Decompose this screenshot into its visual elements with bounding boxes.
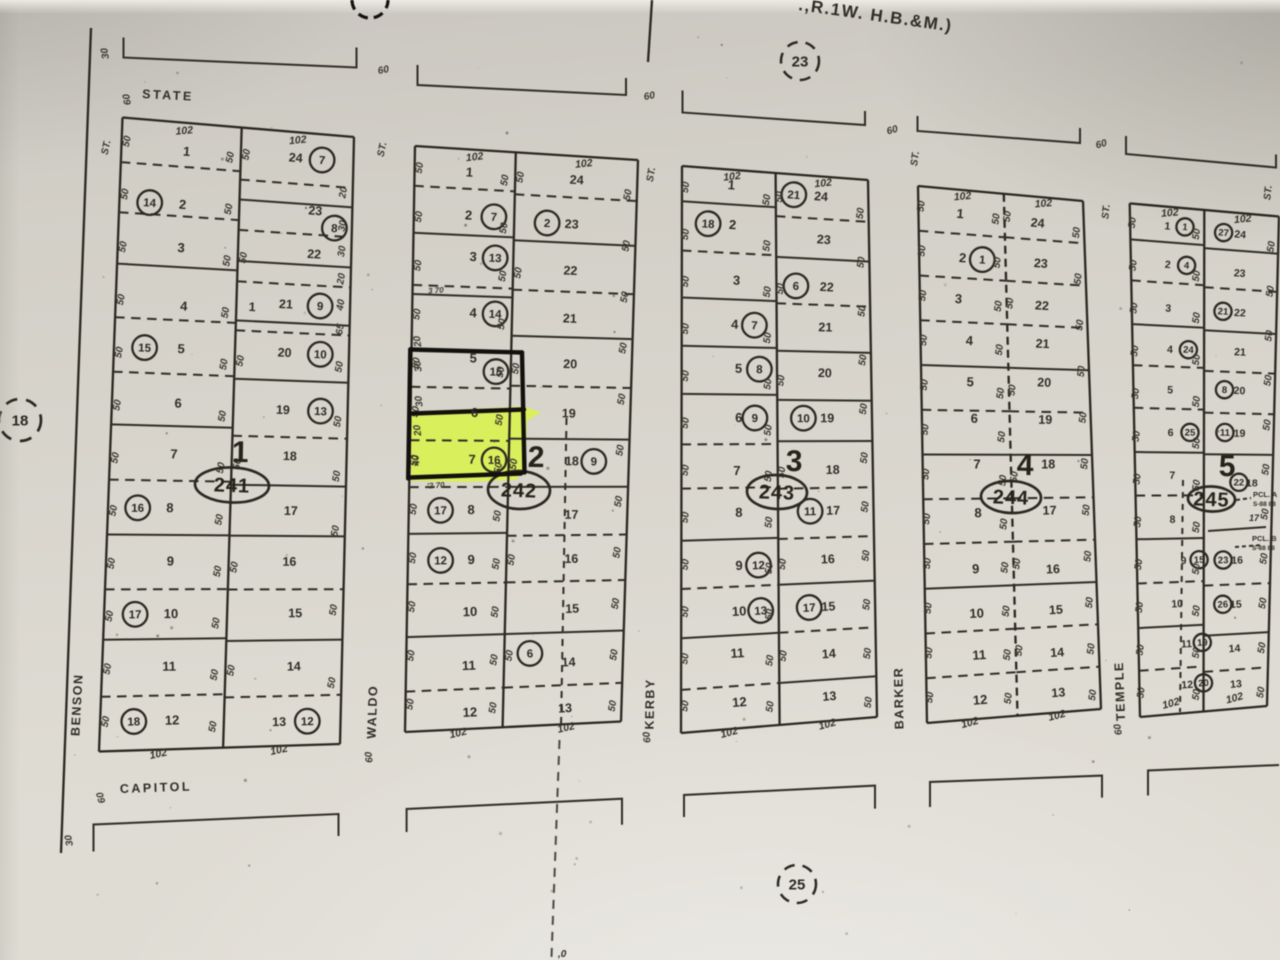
- svg-text:50: 50: [514, 170, 527, 183]
- svg-text:50: 50: [922, 557, 934, 570]
- svg-text:19: 19: [1234, 428, 1246, 440]
- svg-text:50: 50: [1258, 552, 1271, 565]
- svg-text:3 70: 3 70: [428, 285, 445, 295]
- svg-text:12: 12: [165, 712, 180, 727]
- svg-text:50: 50: [491, 509, 504, 522]
- svg-text:50: 50: [408, 503, 421, 516]
- svg-text:14: 14: [1050, 645, 1065, 660]
- svg-text:50: 50: [860, 549, 872, 562]
- svg-text:22: 22: [1234, 307, 1247, 320]
- svg-text:50: 50: [762, 424, 774, 437]
- svg-text:50: 50: [326, 676, 339, 689]
- svg-text:ST.: ST.: [376, 141, 390, 158]
- svg-text:25: 25: [789, 877, 806, 894]
- svg-text:8: 8: [331, 223, 339, 235]
- svg-text:50: 50: [680, 322, 693, 335]
- svg-text:13: 13: [1051, 685, 1066, 700]
- svg-text:20: 20: [337, 186, 350, 200]
- svg-text:50: 50: [1003, 692, 1015, 705]
- svg-text:2: 2: [178, 197, 186, 212]
- svg-text:50: 50: [488, 653, 501, 666]
- svg-text:10: 10: [732, 603, 747, 619]
- svg-text:60: 60: [363, 751, 375, 764]
- svg-text:50: 50: [329, 524, 342, 537]
- svg-text:50: 50: [1191, 646, 1204, 659]
- svg-text:50: 50: [117, 240, 130, 253]
- svg-text:60: 60: [377, 64, 391, 77]
- svg-text:50: 50: [209, 668, 222, 681]
- svg-text:50: 50: [608, 648, 621, 661]
- svg-text:1: 1: [1164, 220, 1171, 232]
- svg-text:50: 50: [237, 251, 250, 264]
- svg-text:102: 102: [1161, 696, 1181, 712]
- svg-text:WALDO: WALDO: [365, 685, 381, 739]
- svg-text:BENSON: BENSON: [68, 673, 85, 736]
- svg-text:50: 50: [234, 354, 247, 367]
- svg-text:50: 50: [861, 598, 873, 611]
- svg-text:7: 7: [733, 463, 740, 478]
- svg-text:11: 11: [972, 647, 987, 663]
- svg-text:19: 19: [1038, 413, 1052, 427]
- svg-text:50: 50: [1191, 562, 1204, 575]
- svg-text:50: 50: [855, 207, 867, 220]
- svg-text:50: 50: [121, 135, 134, 148]
- svg-text:241: 241: [213, 474, 250, 497]
- svg-text:50: 50: [220, 306, 233, 319]
- svg-text:17: 17: [1042, 503, 1056, 517]
- svg-text:50: 50: [407, 551, 420, 564]
- svg-text:24: 24: [569, 173, 584, 188]
- svg-text:50: 50: [920, 468, 932, 481]
- svg-text:1: 1: [979, 254, 987, 266]
- svg-text:1: 1: [465, 164, 473, 179]
- svg-text:23: 23: [308, 203, 323, 218]
- svg-text:2: 2: [959, 250, 967, 265]
- svg-text:9: 9: [591, 456, 597, 468]
- svg-text:50: 50: [1076, 365, 1088, 378]
- svg-text:23: 23: [792, 54, 809, 71]
- svg-text:12: 12: [434, 555, 447, 567]
- svg-text:50: 50: [512, 266, 525, 279]
- svg-text:15: 15: [288, 606, 302, 620]
- svg-text:7: 7: [318, 155, 325, 167]
- svg-text:102: 102: [556, 720, 576, 736]
- svg-text:14: 14: [1228, 643, 1241, 656]
- svg-text:102: 102: [269, 743, 289, 758]
- svg-text:40: 40: [410, 454, 423, 468]
- svg-text:24: 24: [814, 189, 829, 204]
- svg-text:PCL. B: PCL. B: [1252, 534, 1277, 543]
- svg-text:18: 18: [127, 716, 141, 728]
- svg-text:6: 6: [1168, 427, 1174, 439]
- svg-text:18: 18: [1041, 458, 1055, 472]
- svg-text:17: 17: [284, 504, 298, 518]
- svg-text:50: 50: [328, 603, 341, 616]
- svg-text:102: 102: [149, 747, 169, 762]
- svg-text:50: 50: [919, 378, 931, 391]
- svg-text:102: 102: [1047, 708, 1067, 724]
- svg-text:50: 50: [762, 285, 774, 298]
- svg-text:14: 14: [287, 659, 301, 673]
- svg-text:13: 13: [558, 701, 573, 716]
- svg-text:50: 50: [113, 346, 126, 359]
- svg-text:50: 50: [1131, 473, 1143, 486]
- svg-text:15: 15: [565, 602, 579, 616]
- svg-text:50: 50: [862, 647, 874, 660]
- svg-text:4: 4: [469, 305, 477, 320]
- svg-text:50: 50: [764, 700, 776, 713]
- svg-text:244: 244: [992, 486, 1029, 509]
- svg-text:7: 7: [973, 457, 980, 472]
- svg-text:10: 10: [314, 349, 327, 362]
- svg-text:20: 20: [1037, 375, 1051, 389]
- svg-text:23: 23: [1233, 267, 1246, 280]
- svg-text:50: 50: [102, 662, 115, 675]
- svg-text:50: 50: [1011, 557, 1023, 570]
- svg-text:50: 50: [680, 275, 693, 288]
- svg-text:50: 50: [119, 187, 132, 200]
- svg-text:3: 3: [786, 445, 803, 478]
- svg-text:50: 50: [915, 200, 927, 213]
- svg-text:50: 50: [1013, 644, 1025, 657]
- svg-text:14: 14: [143, 197, 157, 210]
- svg-text:4: 4: [180, 298, 189, 313]
- svg-text:50: 50: [1006, 384, 1018, 397]
- svg-text:8: 8: [756, 364, 763, 376]
- svg-text:25: 25: [1185, 428, 1196, 439]
- svg-text:50: 50: [413, 210, 426, 223]
- svg-text:50: 50: [607, 699, 620, 712]
- svg-text:17: 17: [826, 503, 840, 517]
- svg-text:8: 8: [1222, 385, 1228, 396]
- svg-text:6: 6: [735, 410, 742, 425]
- svg-text:50: 50: [404, 698, 417, 711]
- svg-text:ST.: ST.: [909, 151, 922, 167]
- svg-text:102: 102: [1034, 197, 1053, 210]
- svg-text:245: 245: [1193, 488, 1230, 511]
- svg-text:20: 20: [1233, 385, 1245, 397]
- svg-text:50: 50: [1191, 228, 1204, 241]
- svg-text:21: 21: [787, 189, 801, 202]
- svg-text:16: 16: [1231, 554, 1243, 566]
- svg-text:3: 3: [177, 240, 185, 255]
- svg-text:11: 11: [1220, 428, 1231, 439]
- svg-text:13: 13: [272, 715, 286, 729]
- svg-text:17: 17: [434, 505, 447, 517]
- svg-text:15: 15: [1049, 603, 1064, 618]
- svg-text:50: 50: [679, 511, 692, 524]
- svg-text:50: 50: [1135, 643, 1147, 656]
- svg-text:9: 9: [972, 561, 980, 576]
- svg-text:50: 50: [496, 317, 509, 330]
- svg-text:1: 1: [232, 436, 249, 469]
- svg-text:50: 50: [761, 239, 773, 252]
- svg-text:50: 50: [1261, 418, 1274, 431]
- svg-text:4: 4: [1167, 344, 1174, 356]
- svg-text:50: 50: [1191, 604, 1204, 617]
- svg-text:24: 24: [1234, 228, 1247, 241]
- svg-text:3: 3: [469, 249, 477, 264]
- svg-text:13: 13: [822, 689, 837, 704]
- svg-text:50: 50: [1071, 226, 1083, 239]
- svg-text:50: 50: [918, 334, 930, 347]
- svg-text:50: 50: [763, 562, 775, 575]
- svg-text:20: 20: [277, 346, 292, 361]
- svg-text:23: 23: [1218, 555, 1229, 566]
- svg-text:50: 50: [777, 649, 789, 662]
- svg-text:23: 23: [1033, 256, 1048, 271]
- svg-text:16: 16: [821, 552, 835, 567]
- svg-text:8: 8: [166, 500, 173, 515]
- svg-text:50: 50: [1002, 648, 1014, 661]
- svg-text:16: 16: [1046, 562, 1060, 576]
- svg-text:4: 4: [1184, 260, 1191, 271]
- svg-text:50: 50: [777, 558, 789, 571]
- svg-text:19: 19: [820, 411, 834, 425]
- svg-text:3: 3: [954, 291, 962, 306]
- svg-text:50: 50: [919, 423, 931, 436]
- svg-text:6: 6: [971, 411, 978, 426]
- svg-text:30: 30: [336, 245, 349, 258]
- svg-text:18: 18: [826, 463, 840, 477]
- svg-text:50: 50: [412, 259, 425, 272]
- svg-text:50: 50: [679, 605, 692, 618]
- svg-text:50: 50: [1001, 605, 1013, 618]
- svg-text:50: 50: [923, 646, 935, 659]
- svg-text:20: 20: [335, 272, 348, 286]
- svg-text:50: 50: [763, 516, 775, 529]
- svg-text:21: 21: [1217, 306, 1229, 318]
- svg-text:50: 50: [506, 553, 519, 566]
- svg-text:65: 65: [334, 322, 347, 335]
- svg-text:50: 50: [857, 354, 869, 367]
- svg-text:50: 50: [1131, 430, 1143, 443]
- svg-text:5: 5: [735, 361, 742, 376]
- svg-text:17: 17: [129, 609, 142, 621]
- svg-text:17: 17: [1249, 513, 1260, 523]
- svg-text:50: 50: [1262, 374, 1275, 387]
- svg-text:50: 50: [616, 393, 629, 406]
- svg-text:50: 50: [1257, 597, 1270, 610]
- svg-text:2: 2: [528, 441, 545, 474]
- svg-text:22: 22: [307, 247, 322, 262]
- svg-text:15: 15: [821, 599, 836, 614]
- svg-text:30: 30: [99, 47, 112, 60]
- svg-text:50: 50: [764, 654, 776, 667]
- svg-text:12: 12: [462, 704, 477, 720]
- svg-text:18: 18: [12, 413, 29, 430]
- svg-text:8: 8: [735, 505, 743, 520]
- svg-text:50: 50: [100, 715, 113, 728]
- svg-text:8: 8: [974, 505, 981, 520]
- svg-text:9: 9: [752, 413, 758, 425]
- svg-text:24: 24: [1030, 216, 1045, 231]
- svg-text:50: 50: [498, 221, 511, 234]
- svg-text:50: 50: [619, 290, 632, 303]
- svg-text:50: 50: [1130, 387, 1142, 400]
- svg-text:50: 50: [775, 374, 787, 387]
- svg-text:50: 50: [1191, 395, 1204, 408]
- svg-text:6: 6: [174, 395, 182, 410]
- svg-text:50: 50: [207, 720, 220, 733]
- svg-text:2: 2: [465, 207, 473, 222]
- svg-text:TEMPLE: TEMPLE: [1112, 661, 1128, 721]
- svg-text:,0: ,0: [557, 949, 567, 960]
- svg-text:1: 1: [956, 206, 964, 222]
- svg-text:10: 10: [969, 605, 984, 621]
- svg-text:27: 27: [1218, 227, 1229, 239]
- svg-text:60: 60: [641, 731, 653, 744]
- svg-text:16: 16: [564, 552, 578, 566]
- svg-text:50: 50: [999, 561, 1011, 574]
- svg-text:8: 8: [1170, 514, 1176, 526]
- svg-text:4: 4: [965, 333, 974, 348]
- svg-text:50: 50: [610, 597, 623, 610]
- svg-text:21: 21: [279, 297, 294, 312]
- svg-text:50: 50: [1191, 521, 1204, 534]
- svg-text:9: 9: [735, 558, 743, 573]
- svg-text:50: 50: [1259, 507, 1272, 520]
- svg-text:50: 50: [490, 557, 503, 570]
- svg-text:50: 50: [405, 649, 418, 662]
- svg-text:102: 102: [1233, 213, 1252, 227]
- svg-text:50: 50: [333, 360, 346, 373]
- svg-text:50: 50: [916, 244, 928, 257]
- svg-text:50: 50: [1191, 311, 1204, 324]
- svg-text:102: 102: [465, 150, 484, 164]
- svg-text:22: 22: [563, 264, 578, 279]
- svg-text:11: 11: [462, 658, 476, 673]
- svg-text:8: 8: [467, 502, 474, 517]
- svg-text:21: 21: [1234, 346, 1246, 359]
- svg-text:50: 50: [221, 254, 234, 267]
- svg-text:50: 50: [210, 616, 223, 629]
- svg-text:50: 50: [1191, 353, 1204, 366]
- svg-text:50: 50: [499, 173, 512, 186]
- svg-text:6: 6: [792, 281, 799, 293]
- svg-text:2: 2: [544, 218, 551, 230]
- svg-text:50: 50: [228, 561, 241, 574]
- svg-text:.,R.1W. H.B.&M.): .,R.1W. H.B.&M.): [797, 0, 953, 36]
- svg-text:13: 13: [1230, 678, 1243, 691]
- svg-text:30: 30: [63, 834, 76, 847]
- svg-text:102: 102: [289, 134, 308, 148]
- svg-text:40: 40: [335, 298, 348, 312]
- svg-text:5: 5: [1167, 384, 1173, 396]
- svg-text:50: 50: [1191, 688, 1204, 701]
- svg-text:2: 2: [729, 217, 737, 232]
- svg-text:50: 50: [1133, 558, 1145, 571]
- svg-text:14: 14: [561, 655, 575, 670]
- svg-text:50: 50: [614, 444, 627, 457]
- svg-text:18: 18: [283, 449, 297, 463]
- svg-text:102: 102: [719, 725, 739, 741]
- svg-text:50: 50: [617, 341, 630, 354]
- svg-text:50: 50: [503, 649, 516, 662]
- svg-text:50: 50: [679, 699, 692, 712]
- svg-text:50: 50: [859, 500, 871, 513]
- svg-text:50: 50: [1085, 642, 1097, 655]
- svg-text:ST.: ST.: [1262, 185, 1274, 201]
- svg-text:1: 1: [248, 300, 256, 314]
- svg-text:102: 102: [814, 177, 833, 191]
- svg-text:50: 50: [1255, 686, 1268, 699]
- svg-text:21: 21: [563, 311, 577, 325]
- svg-text:19: 19: [276, 403, 290, 417]
- svg-text:102: 102: [175, 124, 194, 138]
- svg-text:50: 50: [859, 451, 871, 464]
- svg-text:30: 30: [413, 395, 426, 408]
- svg-text:30: 30: [412, 360, 425, 373]
- svg-text:50: 50: [764, 608, 776, 621]
- svg-text:50: 50: [680, 369, 693, 382]
- svg-text:50: 50: [212, 565, 225, 578]
- svg-text:50: 50: [216, 409, 229, 422]
- svg-text:50: 50: [331, 470, 344, 483]
- svg-text:ST.: ST.: [645, 166, 658, 183]
- svg-text:50: 50: [1265, 240, 1278, 253]
- svg-text:50: 50: [680, 181, 693, 194]
- svg-text:23: 23: [564, 217, 579, 232]
- svg-text:50: 50: [104, 609, 117, 622]
- svg-text:3: 3: [1165, 303, 1172, 315]
- svg-text:50: 50: [225, 664, 238, 677]
- svg-text:6: 6: [471, 405, 478, 420]
- svg-text:′2 70: ′2 70: [427, 480, 446, 490]
- svg-text:50: 50: [775, 282, 787, 295]
- svg-text:50: 50: [332, 415, 345, 428]
- svg-text:50: 50: [679, 464, 692, 477]
- svg-text:50: 50: [508, 457, 521, 470]
- svg-text:17: 17: [564, 508, 578, 522]
- svg-text:5: 5: [966, 374, 974, 389]
- svg-text:50: 50: [995, 387, 1007, 400]
- svg-text:50: 50: [414, 161, 427, 174]
- svg-text:S-88 88: S-88 88: [1253, 501, 1276, 508]
- svg-text:50: 50: [990, 213, 1002, 226]
- svg-text:17: 17: [803, 602, 816, 615]
- svg-text:242: 242: [500, 479, 537, 502]
- svg-text:ST.: ST.: [100, 139, 114, 156]
- svg-text:16: 16: [282, 555, 296, 569]
- svg-text:50: 50: [855, 256, 867, 269]
- svg-text:22: 22: [820, 280, 835, 295]
- svg-text:6: 6: [527, 648, 534, 660]
- svg-text:50: 50: [1263, 329, 1276, 342]
- svg-text:50: 50: [680, 228, 693, 241]
- svg-text:5: 5: [177, 341, 185, 356]
- svg-text:12: 12: [732, 694, 748, 710]
- svg-text:9: 9: [167, 553, 174, 568]
- svg-text:60: 60: [121, 93, 134, 106]
- svg-text:13: 13: [314, 406, 327, 418]
- svg-text:50: 50: [494, 413, 507, 426]
- svg-text:60: 60: [1095, 138, 1109, 152]
- svg-text:50: 50: [622, 188, 635, 201]
- svg-text:50: 50: [1073, 272, 1085, 285]
- svg-text:5: 5: [1219, 450, 1236, 483]
- svg-text:50: 50: [863, 696, 875, 709]
- svg-text:12: 12: [972, 692, 988, 708]
- svg-text:4: 4: [1017, 449, 1035, 482]
- svg-text:PCL. A: PCL. A: [1253, 490, 1278, 499]
- svg-text:23: 23: [816, 232, 831, 247]
- svg-text:50: 50: [996, 430, 1008, 443]
- svg-text:15: 15: [138, 342, 152, 355]
- svg-text:50: 50: [1134, 601, 1146, 614]
- svg-text:BARKER: BARKER: [891, 667, 906, 730]
- svg-text:2: 2: [1164, 259, 1171, 271]
